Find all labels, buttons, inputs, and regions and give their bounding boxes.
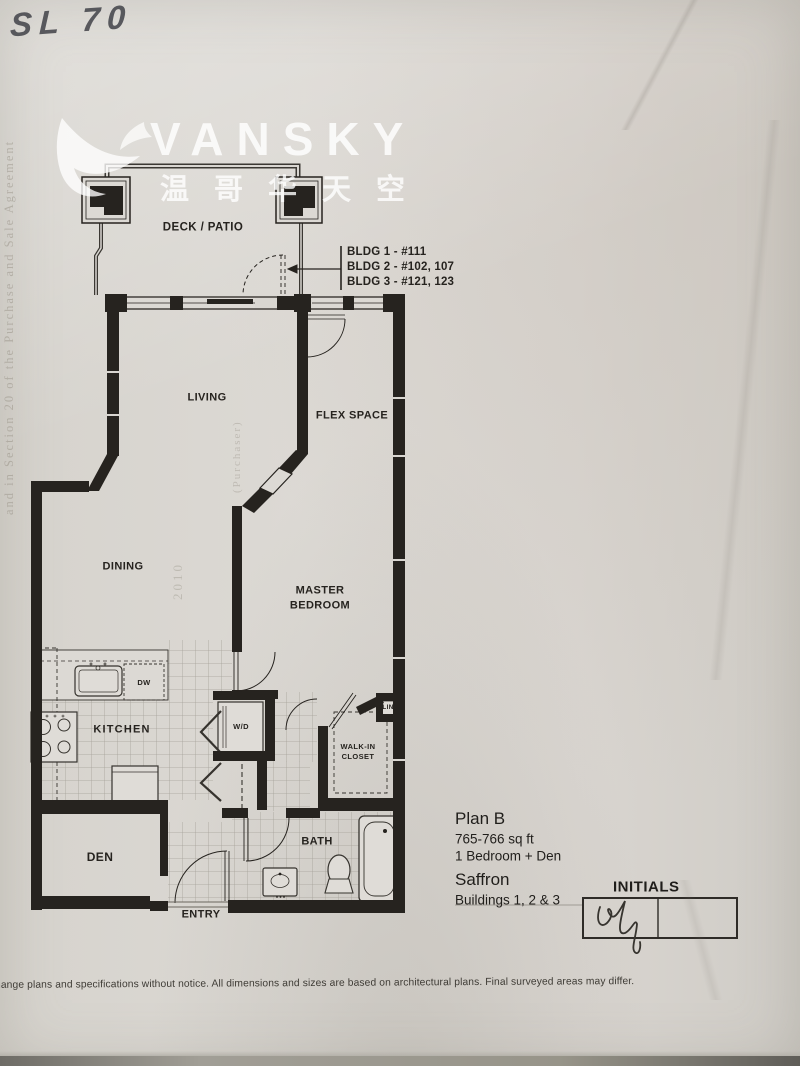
room-label-den: DEN xyxy=(87,850,114,866)
bldg-label-1: BLDG 1 - #111 xyxy=(347,246,426,258)
paper-crease xyxy=(600,880,800,1000)
label-washer-dryer: W/D xyxy=(233,722,249,732)
room-label-bath: BATH xyxy=(301,835,332,850)
room-label-master: MASTER BEDROOM xyxy=(290,583,350,612)
plan-area: 765-766 sq ft xyxy=(455,832,534,847)
room-label-walkin: WALK-IN CLOSET xyxy=(341,742,376,762)
paper-crease xyxy=(690,120,800,680)
plan-name: Plan B xyxy=(455,809,505,829)
bldg-annotation-lines xyxy=(288,246,341,290)
paper-crease xyxy=(545,0,785,130)
label-dishwasher: DW xyxy=(137,678,150,688)
photo-bottom-edge xyxy=(0,1056,800,1066)
room-label-entry: ENTRY xyxy=(182,908,221,923)
bldg-label-3: BLDG 3 - #121, 123 xyxy=(347,276,454,288)
project-buildings: Buildings 1, 2 & 3 xyxy=(455,893,560,908)
project-name: Saffron xyxy=(455,870,510,890)
plan-layout: 1 Bedroom + Den xyxy=(455,849,561,864)
bldg-label-2: BLDG 2 - #102, 107 xyxy=(347,261,454,273)
room-label-flex: FLEX SPACE xyxy=(316,409,388,424)
room-label-living: LIVING xyxy=(187,391,226,406)
room-label-dining: DINING xyxy=(103,560,144,575)
room-label-deck: DECK / PATIO xyxy=(163,220,243,235)
label-linen: LIN xyxy=(382,704,393,712)
scanned-floorplan-page: and in Section 20 of the Purchase and Sa… xyxy=(0,0,800,1066)
room-label-kitchen: KITCHEN xyxy=(93,723,150,738)
